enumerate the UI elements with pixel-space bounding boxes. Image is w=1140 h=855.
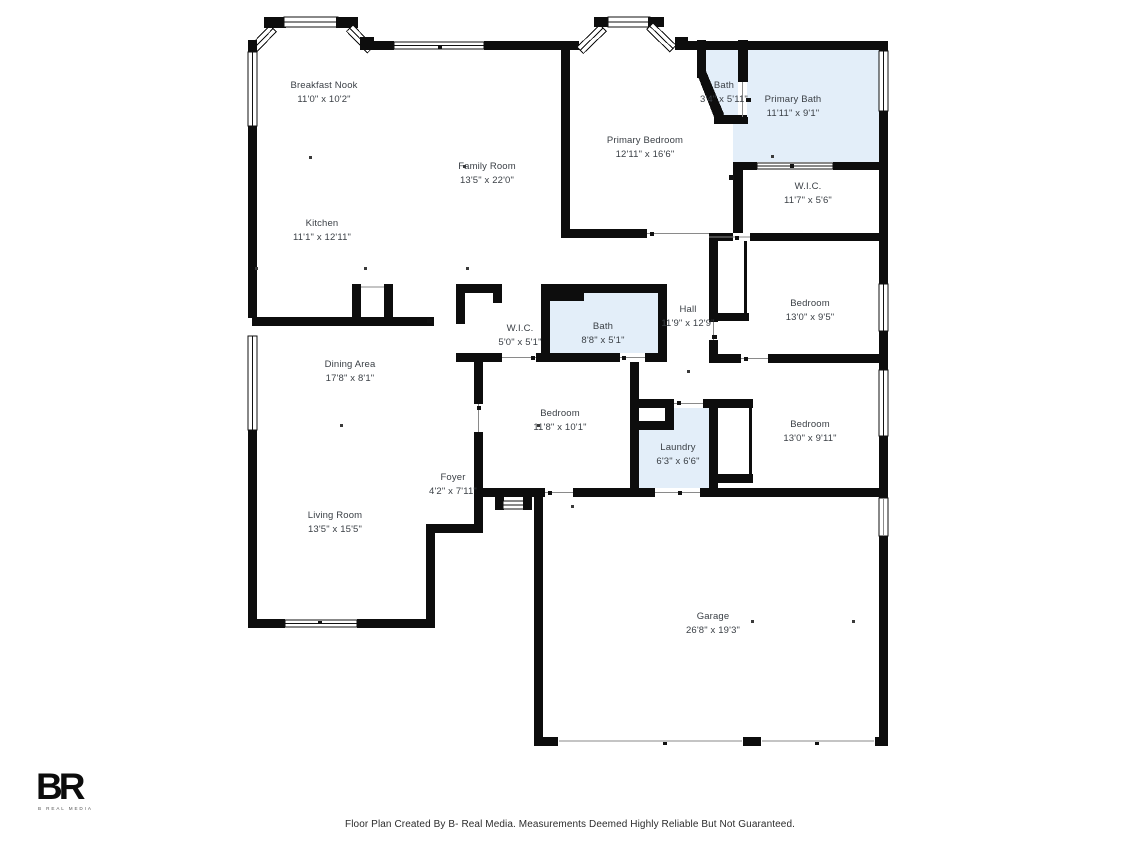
- primary-bath-entry-fill: [733, 122, 747, 162]
- room-name: W.I.C.: [784, 180, 832, 194]
- room-label-hall: Hall11'9" x 12'9": [661, 303, 714, 330]
- room-label-hall-bath: Bath8'8" x 5'1": [581, 320, 624, 347]
- room-dims: 13'5" x 22'0": [458, 174, 516, 188]
- room-label-primary-bath: Primary Bath11'11" x 9'1": [765, 93, 822, 120]
- room-dims: 13'5" x 15'5": [308, 523, 362, 537]
- room-name: Hall: [661, 303, 714, 317]
- room-name: Family Room: [458, 160, 516, 174]
- room-dims: 8'8" x 5'1": [581, 334, 624, 348]
- room-name: Garage: [686, 610, 740, 624]
- room-name: Dining Area: [325, 358, 376, 372]
- room-dims: 11'7" x 5'6": [784, 194, 832, 208]
- room-dims: 13'0" x 9'11": [783, 432, 836, 446]
- room-dims: 11'1" x 12'11": [293, 231, 351, 245]
- room-dims: 26'8" x 19'3": [686, 624, 740, 638]
- room-dims: 4'2" x 7'11": [429, 485, 477, 499]
- room-dims: 6'3" x 6'6": [656, 455, 699, 469]
- room-label-foyer: Foyer4'2" x 7'11": [429, 471, 477, 498]
- room-label-family-room: Family Room13'5" x 22'0": [458, 160, 516, 187]
- room-name: Bath: [700, 79, 748, 93]
- room-name: Bath: [581, 320, 624, 334]
- room-name: Bedroom: [783, 418, 836, 432]
- room-name: Bedroom: [786, 297, 835, 311]
- room-label-primary-bedroom: Primary Bedroom12'11" x 16'6": [607, 134, 683, 161]
- room-label-hall-wic: W.I.C.5'0" x 5'1": [498, 322, 541, 349]
- room-label-kitchen: Kitchen11'1" x 12'11": [293, 217, 351, 244]
- room-label-bedroom-2: Bedroom13'0" x 9'11": [783, 418, 836, 445]
- b-real-media-logo: BR B REAL MEDIA: [36, 770, 106, 811]
- logo-mark: BR: [36, 770, 106, 804]
- room-label-bedroom-middle: Bedroom11'8" x 10'1": [533, 407, 586, 434]
- room-dims: 3'4" x 5'11": [700, 93, 748, 107]
- room-name: Primary Bedroom: [607, 134, 683, 148]
- room-label-garage: Garage26'8" x 19'3": [686, 610, 740, 637]
- room-dims: 11'9" x 12'9": [661, 317, 714, 331]
- room-name: Laundry: [656, 441, 699, 455]
- room-label-laundry: Laundry6'3" x 6'6": [656, 441, 699, 468]
- room-label-dining-area: Dining Area17'8" x 8'1": [325, 358, 376, 385]
- room-dims: 11'8" x 10'1": [533, 421, 586, 435]
- room-label-bedroom-1: Bedroom13'0" x 9'5": [786, 297, 835, 324]
- room-name: Living Room: [308, 509, 362, 523]
- room-label-breakfast-nook: Breakfast Nook11'0" x 10'2": [290, 79, 357, 106]
- room-dims: 5'0" x 5'1": [498, 336, 541, 350]
- room-name: Breakfast Nook: [290, 79, 357, 93]
- room-name: Primary Bath: [765, 93, 822, 107]
- room-dims: 11'0" x 10'2": [290, 93, 357, 107]
- logo-subtext: B REAL MEDIA: [38, 806, 106, 811]
- floor-plan-page: Breakfast Nook11'0" x 10'2" Family Room1…: [0, 0, 1140, 855]
- room-label-bath-wc: Bath3'4" x 5'11": [700, 79, 748, 106]
- room-dims: 17'8" x 8'1": [325, 372, 376, 386]
- room-dims: 13'0" x 9'5": [786, 311, 835, 325]
- room-label-primary-wic: W.I.C.11'7" x 5'6": [784, 180, 832, 207]
- room-name: W.I.C.: [498, 322, 541, 336]
- disclaimer-text: Floor Plan Created By B- Real Media. Mea…: [345, 819, 795, 830]
- room-name: Bedroom: [533, 407, 586, 421]
- room-label-living-room: Living Room13'5" x 15'5": [308, 509, 362, 536]
- room-dims: 11'11" x 9'1": [765, 107, 822, 121]
- room-dims: 12'11" x 16'6": [607, 148, 683, 162]
- room-name: Foyer: [429, 471, 477, 485]
- room-name: Kitchen: [293, 217, 351, 231]
